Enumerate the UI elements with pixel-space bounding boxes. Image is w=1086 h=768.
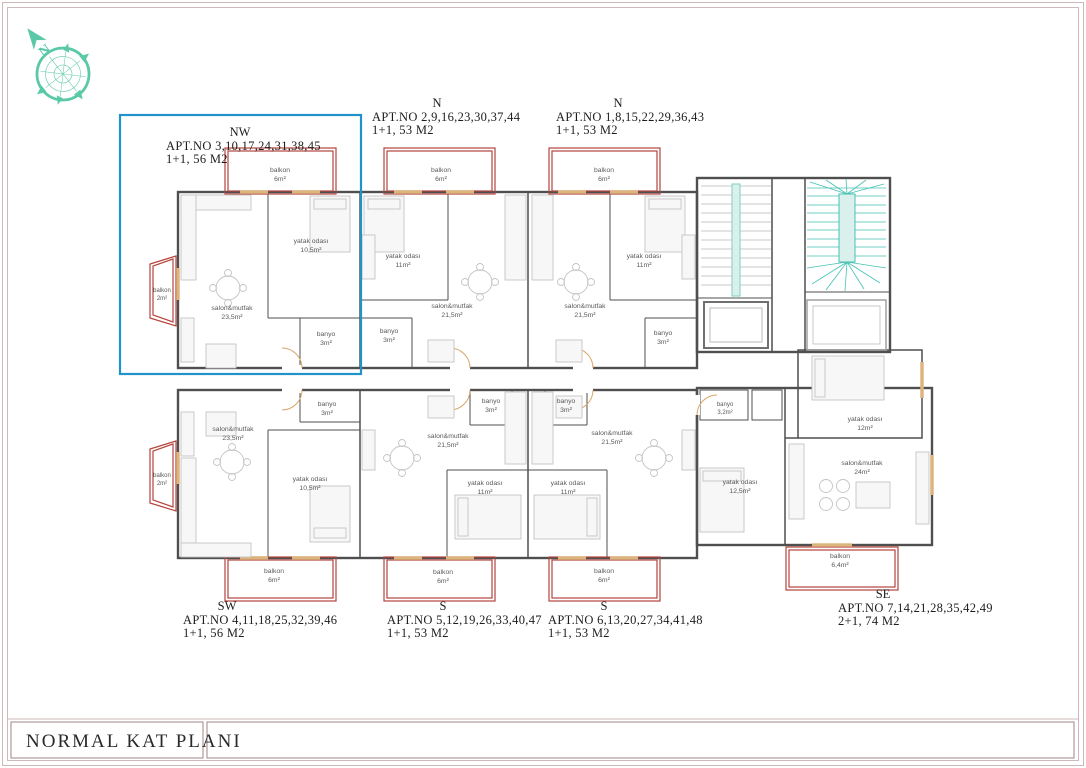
apartment-label-s2: S APT.NO 6,13,20,27,34,41,48 1+1, 53 M2 <box>548 599 703 640</box>
svg-text:APT.NO 4,11,18,25,32,39,46: APT.NO 4,11,18,25,32,39,46 <box>183 613 337 627</box>
room-label: balkon2m² <box>153 288 171 302</box>
apartment-label-n2: N APT.NO 1,8,15,22,29,36,43 1+1, 53 M2 <box>556 96 704 137</box>
svg-text:1+1, 56 M2: 1+1, 56 M2 <box>183 626 245 640</box>
svg-text:APT.NO 6,13,20,27,34,41,48: APT.NO 6,13,20,27,34,41,48 <box>548 613 703 627</box>
apartment-region-s2[interactable] <box>528 390 697 602</box>
svg-text:balkon: balkon <box>153 288 171 294</box>
apartment-label-sw: SW APT.NO 4,11,18,25,32,39,46 1+1, 56 M2 <box>183 599 337 640</box>
svg-text:N: N <box>613 96 622 110</box>
title-bar: NORMAL KAT PLANI <box>8 719 1079 758</box>
svg-text:APT.NO 7,14,21,28,35,42,49: APT.NO 7,14,21,28,35,42,49 <box>838 601 993 615</box>
svg-text:1+1, 53 M2: 1+1, 53 M2 <box>548 626 610 640</box>
svg-text:2m²: 2m² <box>157 296 167 302</box>
room-label: balkon2m² <box>153 473 171 487</box>
svg-text:2+1, 74 M2: 2+1, 74 M2 <box>838 614 900 628</box>
apartment-label-s1: S APT.NO 5,12,19,26,33,40,47 1+1, 53 M2 <box>387 599 542 640</box>
svg-text:1+1, 53 M2: 1+1, 53 M2 <box>556 123 618 137</box>
apartment-region-sw[interactable] <box>178 390 360 602</box>
page-title: NORMAL KAT PLANI <box>26 731 242 752</box>
apartment-region-s1[interactable] <box>360 390 528 602</box>
svg-text:1+1, 53 M2: 1+1, 53 M2 <box>372 123 434 137</box>
compass-icon: N <box>1 8 108 120</box>
apartment-region-se[interactable] <box>697 350 932 592</box>
apartment-region-n2[interactable] <box>528 148 697 368</box>
staircase-a <box>701 184 771 296</box>
apartment-region-n1[interactable] <box>360 148 528 368</box>
staircase-b <box>807 179 886 291</box>
title-bar-extension <box>207 722 1074 758</box>
apartment-label-n1: N APT.NO 2,9,16,23,30,37,44 1+1, 53 M2 <box>372 96 521 137</box>
apartment-label-se: SE APT.NO 7,14,21,28,35,42,49 2+1, 74 M2 <box>838 587 993 628</box>
svg-text:1+1, 53 M2: 1+1, 53 M2 <box>387 626 449 640</box>
svg-text:N: N <box>432 96 441 110</box>
svg-text:2m²: 2m² <box>157 481 167 487</box>
svg-text:balkon: balkon <box>153 473 171 479</box>
elevator-shaft-a <box>704 302 768 348</box>
svg-text:NW: NW <box>230 125 251 139</box>
svg-text:APT.NO 1,8,15,22,29,36,43: APT.NO 1,8,15,22,29,36,43 <box>556 110 704 124</box>
svg-text:APT.NO 5,12,19,26,33,40,47: APT.NO 5,12,19,26,33,40,47 <box>387 613 542 627</box>
apartment-region-nw[interactable] <box>178 148 360 368</box>
floor-plan-page: balkon6m² yatak odası10,5m² salon&mutfak… <box>0 0 1086 768</box>
svg-text:APT.NO 2,9,16,23,30,37,44: APT.NO 2,9,16,23,30,37,44 <box>372 110 521 124</box>
elevator-shaft-b <box>807 300 886 350</box>
